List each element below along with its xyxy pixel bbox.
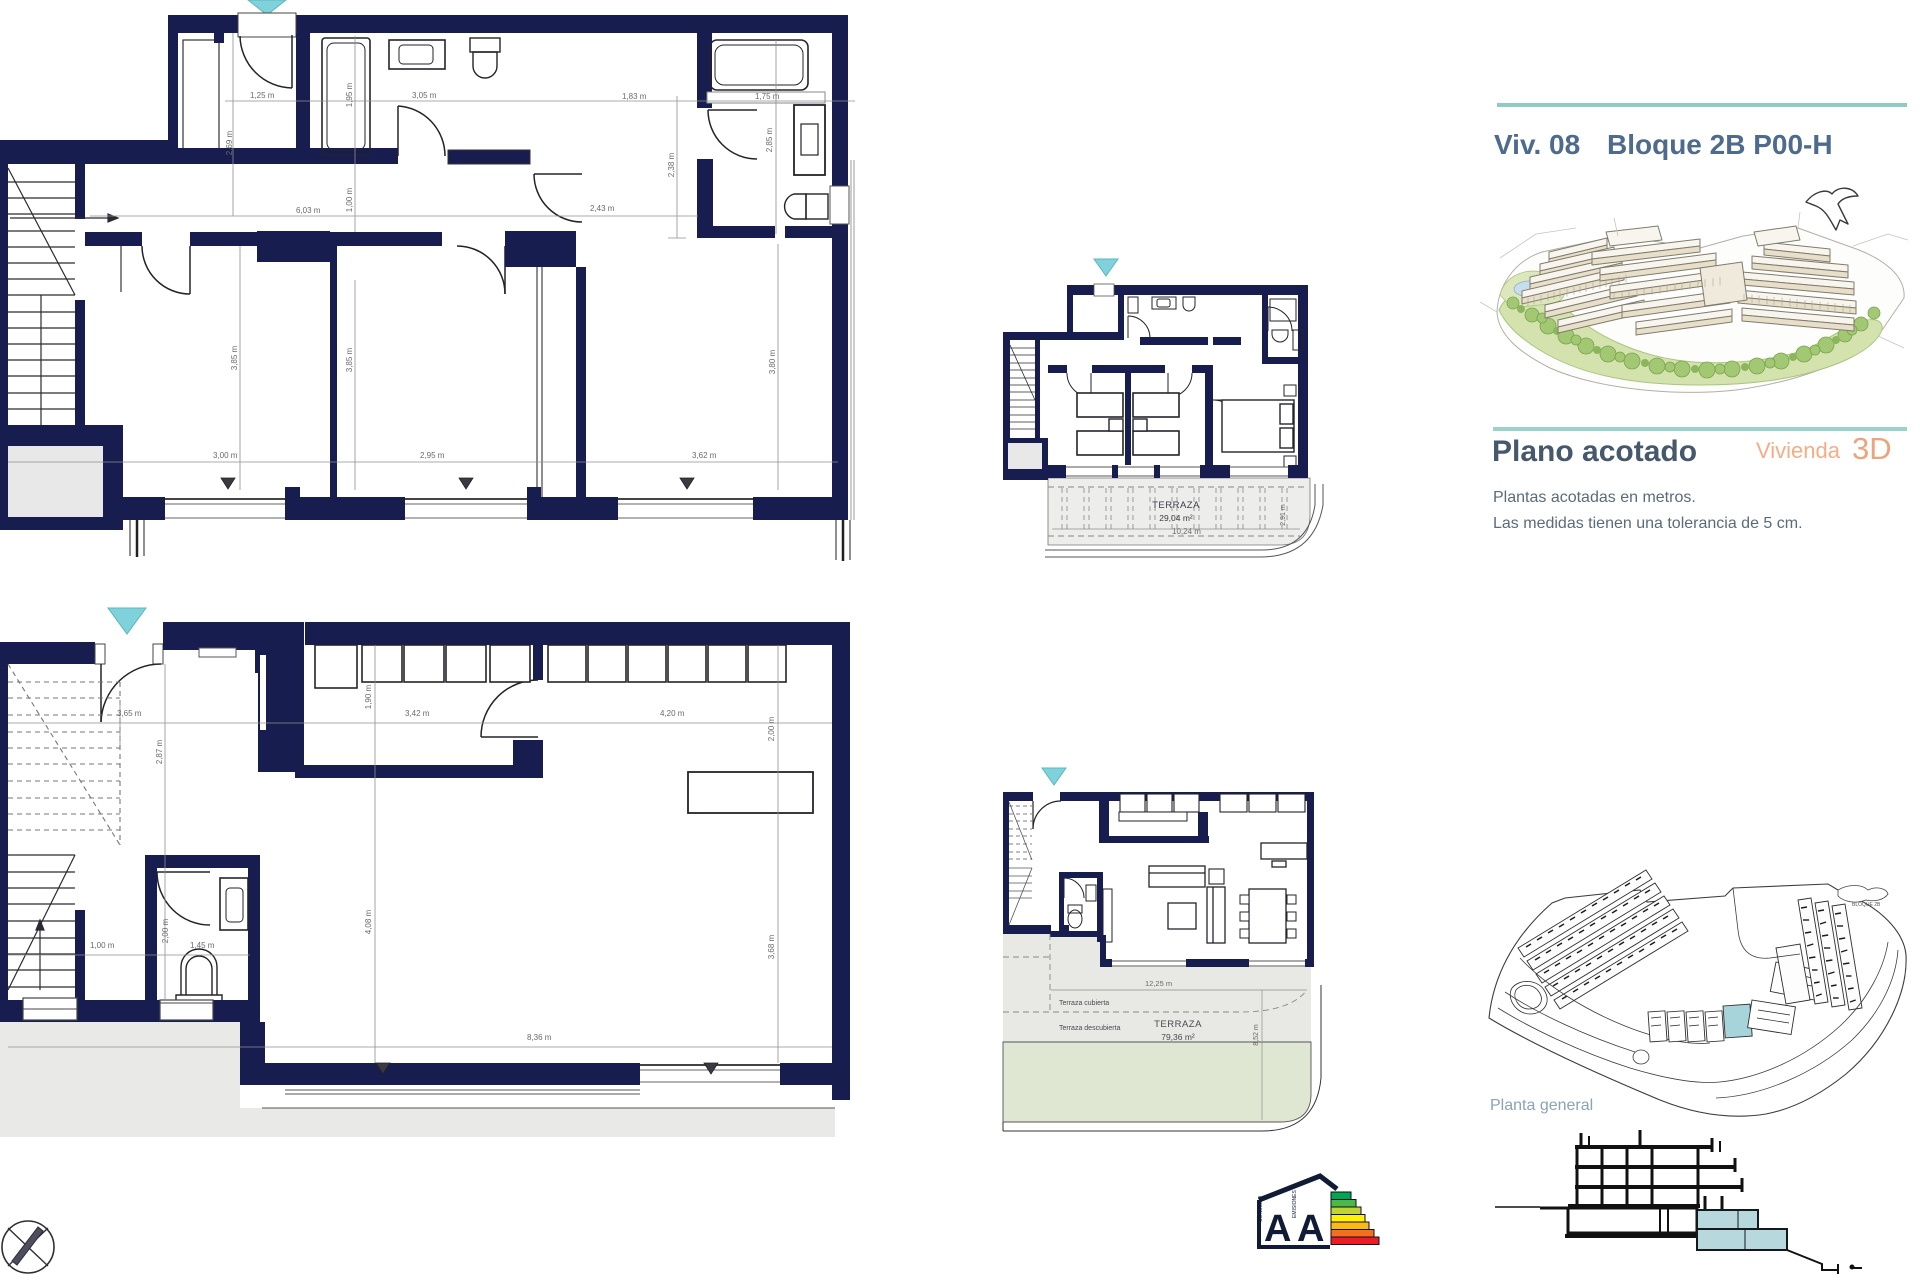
svg-text:1,83 m: 1,83 m (622, 92, 647, 101)
svg-text:BLOQUE 2B: BLOQUE 2B (1852, 902, 1881, 908)
svg-text:10,24 m: 10,24 m (1172, 527, 1201, 536)
svg-text:1,95 m: 1,95 m (345, 82, 354, 107)
svg-text:Planta general: Planta general (1490, 1097, 1593, 1114)
svg-text:2,69 m: 2,69 m (225, 130, 234, 155)
svg-text:2,87 m: 2,87 m (155, 739, 164, 764)
svg-text:4,20 m: 4,20 m (660, 709, 685, 718)
svg-text:Plantas acotadas en metros.: Plantas acotadas en metros. (1493, 489, 1696, 506)
svg-text:Las medidas tienen una toleran: Las medidas tienen una tolerancia de 5 c… (1493, 515, 1803, 532)
svg-text:CONSUMO: CONSUMO (1258, 1196, 1264, 1222)
svg-text:2,00 m: 2,00 m (767, 716, 776, 741)
svg-text:2,38 m: 2,38 m (667, 152, 676, 177)
svg-text:4,08 m: 4,08 m (364, 909, 373, 934)
svg-text:1,90 m: 1,90 m (364, 684, 373, 709)
svg-text:A: A (1297, 1208, 1324, 1250)
svg-text:3,65 m: 3,65 m (117, 709, 142, 718)
svg-text:3,00 m: 3,00 m (213, 451, 238, 460)
svg-text:Plano acotado: Plano acotado (1492, 435, 1697, 468)
svg-text:2,85 m: 2,85 m (765, 127, 774, 152)
svg-text:1,25 m: 1,25 m (250, 91, 275, 100)
svg-text:2,43 m: 2,43 m (590, 204, 615, 213)
svg-text:3D: 3D (1852, 431, 1892, 466)
svg-text:EMISIONES: EMISIONES (1292, 1190, 1298, 1218)
svg-text:3,68 m: 3,68 m (767, 934, 776, 959)
svg-text:12,25 m: 12,25 m (1145, 979, 1172, 988)
svg-text:Terraza cubierta: Terraza cubierta (1059, 1000, 1109, 1007)
svg-text:79,36 m²: 79,36 m² (1161, 1032, 1195, 1042)
svg-text:29,04 m²: 29,04 m² (1159, 513, 1193, 523)
svg-text:1,45 m: 1,45 m (190, 941, 215, 950)
svg-text:Vivienda: Vivienda (1756, 438, 1841, 463)
svg-text:TERRAZA: TERRAZA (1154, 1019, 1202, 1030)
svg-text:3,42 m: 3,42 m (405, 709, 430, 718)
svg-text:2,95 m: 2,95 m (420, 451, 445, 460)
svg-text:3,80 m: 3,80 m (768, 349, 777, 374)
svg-text:1,00 m: 1,00 m (90, 941, 115, 950)
svg-text:3,85 m: 3,85 m (230, 345, 239, 370)
svg-text:2,00 m: 2,00 m (161, 918, 170, 943)
svg-text:Terraza descubierta: Terraza descubierta (1059, 1025, 1121, 1032)
svg-text:Bloque 2B P00-H: Bloque 2B P00-H (1607, 129, 1833, 160)
svg-text:6,03 m: 6,03 m (296, 206, 321, 215)
svg-text:3,85 m: 3,85 m (345, 347, 354, 372)
svg-text:8,52 m: 8,52 m (1253, 1024, 1260, 1046)
svg-text:A: A (1264, 1208, 1291, 1250)
svg-text:TERRAZA: TERRAZA (1152, 500, 1200, 511)
svg-text:3,05 m: 3,05 m (412, 91, 437, 100)
svg-text:2,91 m: 2,91 m (1280, 504, 1287, 526)
svg-text:Viv. 08: Viv. 08 (1494, 129, 1580, 160)
svg-text:1,75 m: 1,75 m (755, 92, 780, 101)
svg-text:1,00 m: 1,00 m (345, 187, 354, 212)
svg-text:3,62 m: 3,62 m (692, 451, 717, 460)
svg-text:8,36 m: 8,36 m (527, 1033, 552, 1042)
